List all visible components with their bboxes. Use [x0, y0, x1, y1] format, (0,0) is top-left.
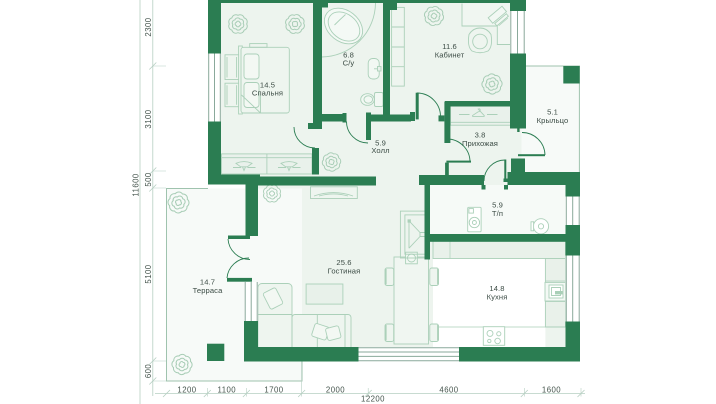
svg-text:Т/п: Т/п: [492, 209, 503, 218]
svg-text:Гостиная: Гостиная: [328, 267, 361, 276]
svg-text:Крыльцо: Крыльцо: [537, 116, 569, 125]
svg-text:1700: 1700: [264, 385, 283, 394]
svg-text:11600: 11600: [131, 173, 140, 197]
svg-text:Терраса: Терраса: [193, 286, 224, 295]
svg-text:600: 600: [144, 364, 153, 379]
svg-text:Кабинет: Кабинет: [435, 51, 465, 60]
svg-text:12200: 12200: [361, 395, 385, 404]
svg-text:Холл: Холл: [371, 146, 389, 155]
svg-text:2000: 2000: [326, 385, 345, 394]
svg-text:1100: 1100: [218, 385, 237, 394]
svg-text:1600: 1600: [542, 385, 561, 394]
svg-text:1200: 1200: [177, 385, 196, 394]
svg-text:С/у: С/у: [343, 59, 355, 68]
svg-text:4600: 4600: [439, 385, 458, 394]
svg-text:3100: 3100: [144, 109, 153, 128]
svg-text:Прихожая: Прихожая: [462, 139, 498, 148]
svg-text:2300: 2300: [144, 17, 153, 36]
svg-text:Кухня: Кухня: [487, 293, 508, 302]
svg-text:500: 500: [144, 172, 153, 187]
svg-text:5100: 5100: [144, 264, 153, 283]
svg-text:Спальня: Спальня: [252, 88, 283, 97]
